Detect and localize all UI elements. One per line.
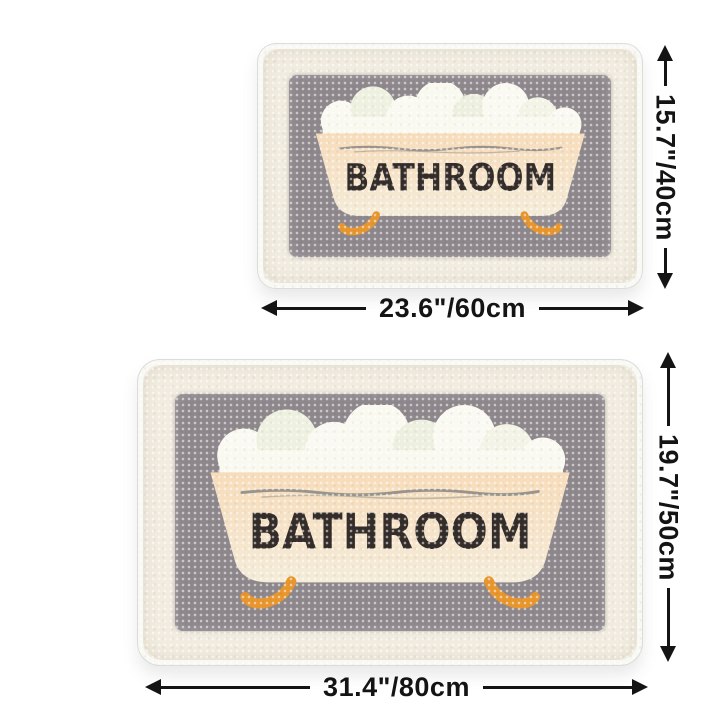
dimension-line — [664, 61, 667, 86]
dimension-line — [667, 368, 670, 426]
arrow-down-icon — [657, 273, 673, 289]
arrow-left-icon — [145, 679, 161, 695]
foam-bubbles-icon — [217, 405, 565, 482]
bathtub-illustration: BATHROOM — [299, 83, 602, 238]
arrow-up-icon — [660, 352, 676, 368]
dimension-line — [277, 307, 366, 310]
dimension-line — [161, 686, 310, 689]
width-label-small: 23.6"/60cm — [366, 293, 539, 324]
bath-mat-small: BATHROOM — [258, 44, 642, 288]
height-dimension-large: 19.7"/50cm — [651, 352, 685, 662]
width-label-large: 31.4"/80cm — [310, 672, 483, 703]
arrow-up-icon — [657, 45, 673, 61]
arrow-down-icon — [660, 646, 676, 662]
arrow-right-icon — [628, 300, 644, 316]
dimension-line — [664, 248, 667, 273]
dimension-line — [539, 307, 628, 310]
product-size-chart: BATHROOM 15.7"/40cm 23.6"/60cm — [0, 0, 720, 720]
mat-gray-panel: BATHROOM — [175, 394, 605, 631]
height-label-small: 15.7"/40cm — [650, 86, 681, 249]
tub-foot-left-icon — [342, 215, 376, 232]
tub-foot-right-icon — [524, 215, 558, 232]
mat-gray-panel: BATHROOM — [289, 75, 611, 257]
tub-foot-left-icon — [245, 581, 291, 603]
height-dimension-small: 15.7"/40cm — [648, 45, 682, 289]
height-label-large: 19.7"/50cm — [653, 426, 684, 589]
mat-text: BATHROOM — [249, 502, 532, 560]
mat-text: BATHROOM — [344, 157, 556, 200]
bath-mat-large: BATHROOM — [138, 360, 642, 665]
foam-bubbles-icon — [321, 83, 582, 141]
arrow-left-icon — [261, 300, 277, 316]
dimension-line — [483, 686, 632, 689]
dimension-line — [667, 588, 670, 646]
width-dimension-large: 31.4"/80cm — [145, 670, 648, 704]
width-dimension-small: 23.6"/60cm — [261, 291, 644, 325]
tub-foot-right-icon — [489, 581, 535, 603]
bathtub-illustration: BATHROOM — [188, 405, 592, 612]
arrow-right-icon — [632, 679, 648, 695]
